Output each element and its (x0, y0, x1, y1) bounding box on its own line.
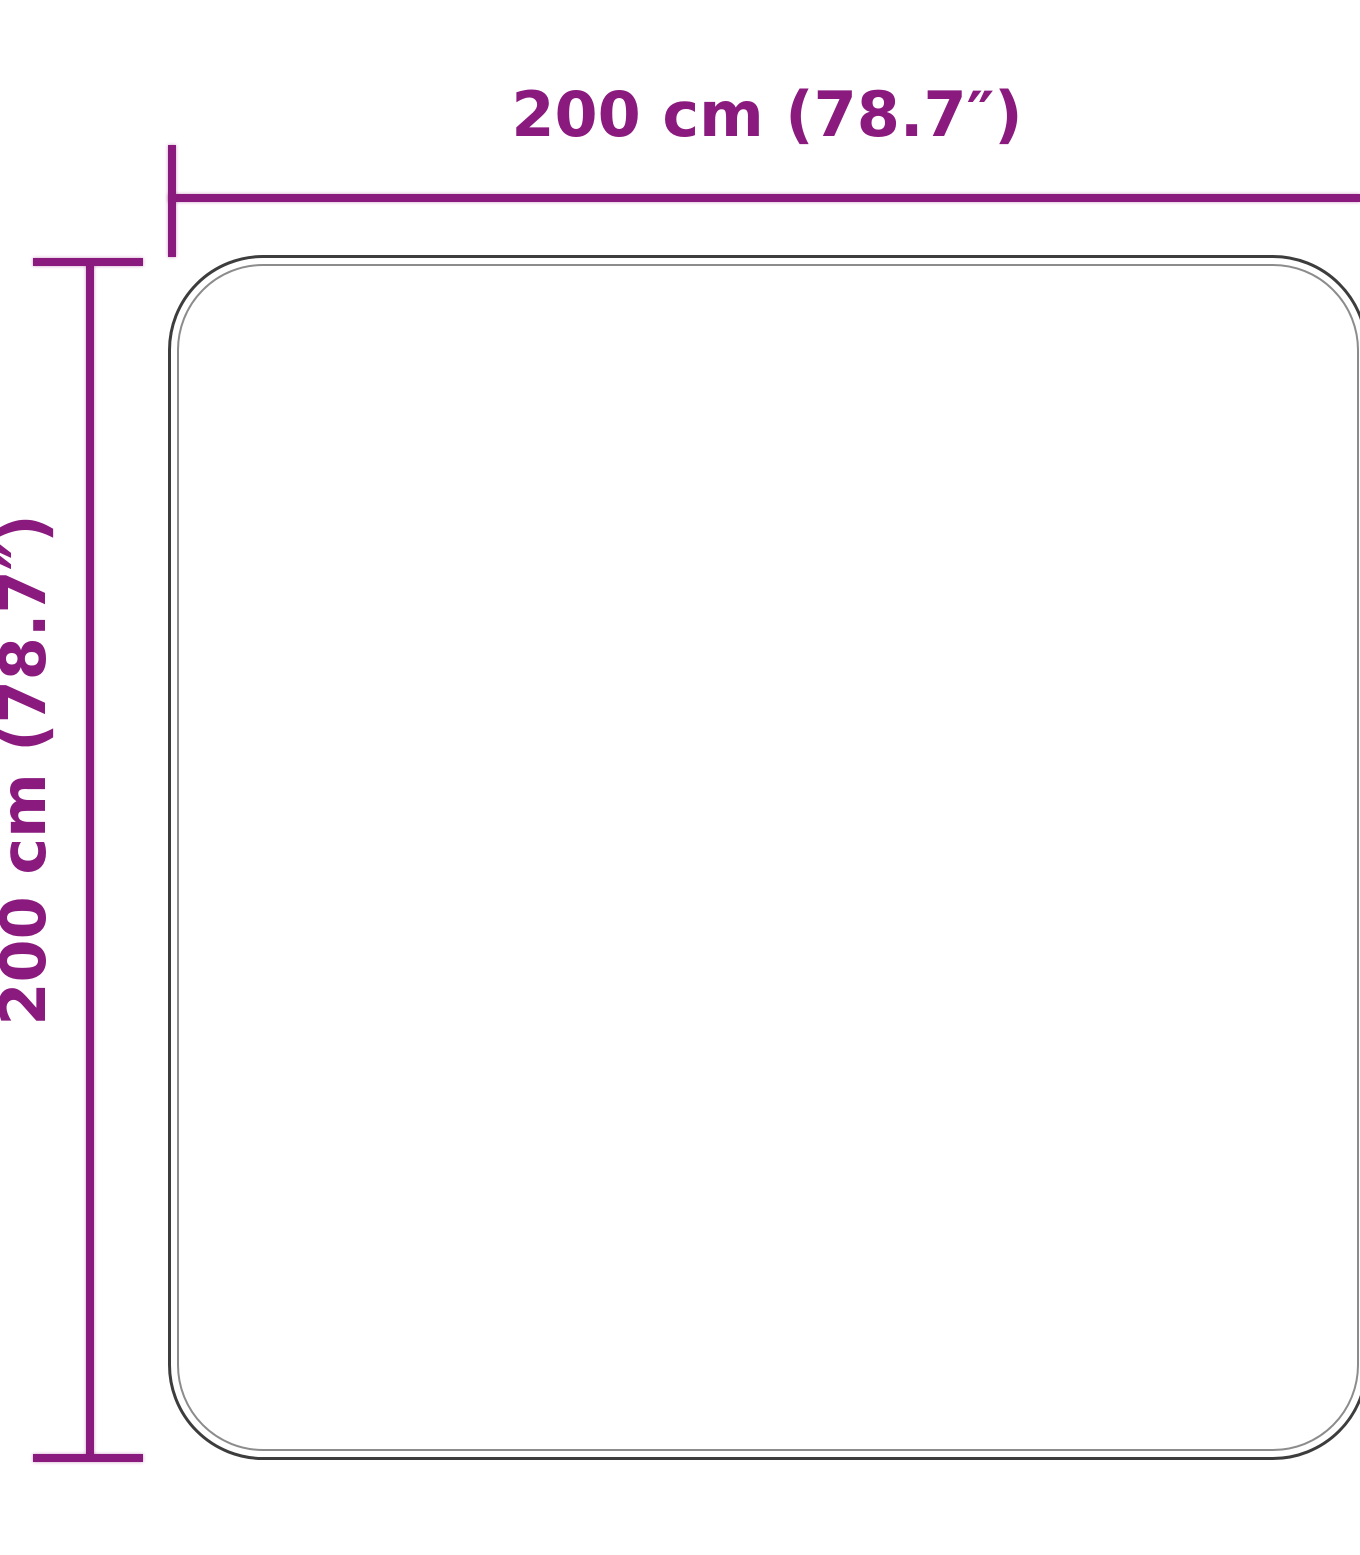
dimension-diagram: 200 cm (78.7″) 200 cm (78.7″) (0, 0, 1360, 1555)
height-dimension-tick-top (33, 258, 143, 266)
width-dimension-tick-left (168, 145, 176, 257)
width-dimension-line (168, 194, 1360, 202)
height-dimension-tick-bottom (33, 1454, 143, 1462)
width-dimension-label: 200 cm (78.7″) (511, 84, 1022, 146)
rug-outline-inner (177, 264, 1359, 1451)
height-dimension-label: 200 cm (78.7″) (0, 514, 55, 1025)
rug-outline-outer (168, 255, 1360, 1460)
height-dimension-line (86, 262, 94, 1458)
